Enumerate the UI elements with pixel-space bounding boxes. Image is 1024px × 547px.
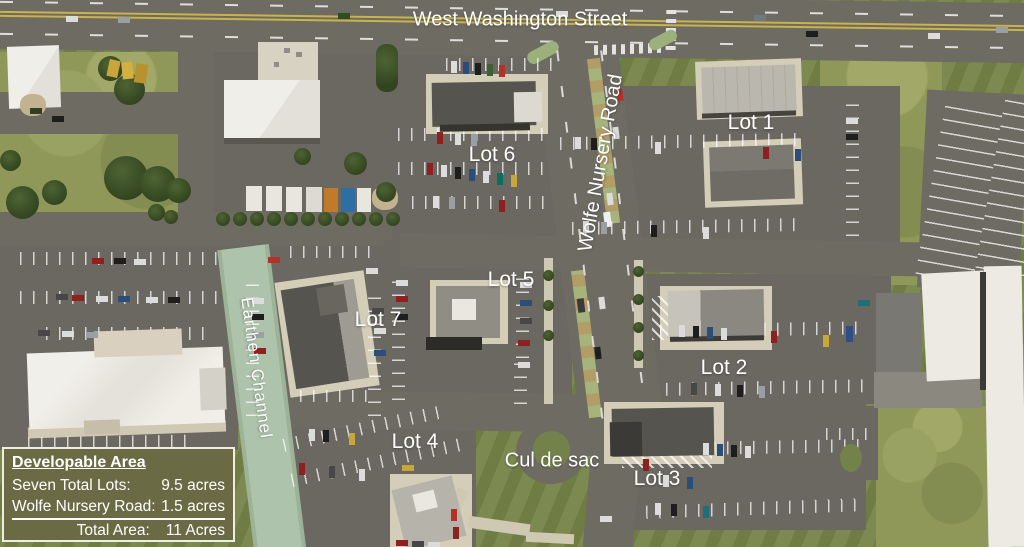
car — [518, 362, 530, 368]
car — [858, 300, 870, 306]
car — [463, 62, 469, 74]
car — [575, 137, 581, 149]
building-lot1-lower — [709, 145, 795, 202]
tree — [543, 270, 554, 281]
car — [520, 300, 532, 306]
car — [52, 116, 64, 122]
car — [497, 173, 503, 185]
building-store — [27, 347, 226, 430]
car — [62, 331, 74, 337]
stripes-lot5-col1 — [392, 276, 405, 400]
car — [96, 296, 108, 302]
car — [703, 227, 709, 239]
trailer-2 — [266, 186, 282, 211]
legend-row-total-area: Total Area: 11 Acres — [12, 520, 225, 541]
tree — [344, 152, 367, 175]
car — [134, 259, 146, 265]
car — [455, 133, 461, 145]
car — [449, 197, 455, 209]
bush — [250, 212, 264, 226]
car — [717, 444, 723, 456]
car — [693, 326, 699, 338]
car — [455, 167, 461, 179]
legend-value: 11 Acres — [166, 520, 225, 541]
car — [487, 64, 493, 76]
car — [703, 443, 709, 455]
car — [86, 332, 98, 338]
tree — [166, 178, 191, 203]
car — [475, 63, 481, 75]
bush — [284, 212, 298, 226]
car — [118, 17, 130, 23]
car — [707, 327, 713, 339]
car — [687, 477, 693, 489]
car — [56, 294, 68, 300]
car — [846, 118, 858, 124]
car — [329, 466, 335, 478]
car — [846, 134, 858, 140]
tree — [0, 150, 21, 171]
car — [598, 297, 605, 310]
car — [349, 433, 355, 445]
car — [643, 459, 649, 471]
car — [451, 509, 457, 521]
loop-island — [840, 444, 862, 472]
tree — [543, 300, 554, 311]
building-far-right-band — [984, 266, 1024, 547]
car — [412, 541, 424, 547]
trailer-3 — [286, 187, 302, 212]
building-store-tan — [94, 328, 183, 357]
stripes-lot5-col3 — [514, 362, 527, 404]
building-lot5-white — [452, 299, 476, 320]
roof-unit-1 — [284, 48, 290, 53]
bush — [369, 212, 383, 226]
car — [428, 542, 440, 547]
tree — [294, 148, 311, 165]
bush — [233, 212, 247, 226]
drive-right — [876, 293, 922, 381]
car — [72, 295, 84, 301]
car — [254, 348, 266, 354]
car — [737, 385, 743, 397]
car — [771, 331, 777, 343]
car — [374, 350, 386, 356]
car — [996, 27, 1008, 33]
car — [612, 127, 619, 140]
car — [663, 475, 669, 487]
trailer-5 — [357, 188, 371, 212]
car — [594, 347, 601, 360]
car — [268, 257, 280, 263]
car — [338, 13, 350, 19]
car — [402, 465, 414, 471]
car — [441, 165, 447, 177]
tree — [543, 330, 554, 341]
car — [679, 325, 685, 337]
tree — [633, 294, 644, 305]
car — [601, 222, 607, 234]
car — [651, 225, 657, 237]
car — [299, 463, 305, 475]
trailer-4 — [306, 187, 322, 212]
car — [252, 298, 264, 304]
car — [66, 16, 78, 22]
car — [437, 132, 443, 144]
culdesac-island — [533, 431, 570, 468]
bush — [386, 212, 400, 226]
legend-row-wolfe-nursery-road: Wolfe Nursery Road: 1.5 acres — [12, 496, 225, 519]
stripes-loop — [826, 428, 874, 440]
bush — [335, 212, 349, 226]
car — [323, 430, 329, 442]
bush — [318, 212, 332, 226]
stripes-lot7-row2 — [300, 390, 370, 402]
legend-label: Seven Total Lots: — [12, 475, 131, 496]
car — [309, 429, 315, 441]
car — [556, 11, 568, 17]
car — [359, 469, 365, 481]
car — [745, 446, 751, 458]
car — [396, 296, 408, 302]
trailer-orange — [324, 188, 338, 212]
car — [374, 328, 386, 334]
car — [168, 297, 180, 303]
building-lot5-trucks — [426, 337, 482, 350]
equipment — [121, 61, 134, 79]
bush — [352, 212, 366, 226]
hedge-entrance — [376, 44, 398, 92]
car — [731, 445, 737, 457]
car — [366, 268, 378, 274]
building-lot3-wing — [610, 422, 643, 457]
car — [655, 142, 661, 154]
car — [928, 33, 940, 39]
car — [471, 134, 477, 146]
car — [396, 540, 408, 546]
car — [433, 196, 439, 208]
car — [703, 506, 709, 518]
car — [616, 89, 623, 102]
car — [583, 221, 589, 233]
car — [518, 340, 530, 346]
legend-value: 1.5 acres — [161, 496, 225, 517]
car — [118, 296, 130, 302]
car — [600, 516, 612, 522]
car — [691, 383, 697, 395]
legend-row-total-lots: Seven Total Lots: 9.5 acres — [12, 475, 225, 496]
car — [754, 15, 766, 21]
car — [396, 314, 408, 320]
roof-unit-2 — [296, 52, 302, 57]
car — [606, 193, 613, 206]
car — [469, 169, 475, 181]
car — [38, 330, 50, 336]
building-lot6-white — [514, 92, 543, 122]
car — [520, 318, 532, 324]
car — [451, 61, 457, 73]
car — [671, 504, 677, 516]
site-plan-image: West Washington Street Wolfe Nursery Roa… — [0, 0, 1024, 547]
car — [763, 147, 769, 159]
tree — [148, 204, 165, 221]
developable-area-legend: Developable Area Seven Total Lots: 9.5 a… — [2, 447, 235, 542]
bush — [267, 212, 281, 226]
tree — [42, 180, 67, 205]
car — [483, 171, 489, 183]
car — [453, 527, 459, 539]
car — [721, 328, 727, 340]
car — [427, 163, 433, 175]
truck — [846, 326, 853, 342]
legend-value: 9.5 acres — [161, 475, 225, 496]
building-center — [224, 80, 320, 140]
building-far-right-wing — [921, 270, 989, 381]
bush — [216, 212, 230, 226]
car — [499, 200, 505, 212]
building-lot7-wing — [316, 284, 348, 316]
car — [715, 384, 721, 396]
tree — [6, 186, 39, 219]
tree — [633, 350, 644, 361]
building-store-canopy — [84, 419, 120, 434]
car — [252, 332, 264, 338]
bush — [301, 212, 315, 226]
tree — [633, 266, 644, 277]
car — [30, 108, 42, 114]
building-store-wing — [199, 368, 226, 411]
car — [92, 258, 104, 264]
tree — [376, 182, 396, 202]
car — [759, 386, 765, 398]
car — [806, 31, 818, 37]
car — [795, 149, 801, 161]
trailer-1 — [246, 186, 262, 211]
legend-label: Wolfe Nursery Road: — [12, 496, 156, 517]
car — [252, 314, 264, 320]
building-lot1-upper — [701, 64, 797, 115]
car — [499, 65, 505, 77]
legend-label: Total Area: — [77, 520, 150, 541]
car — [655, 503, 661, 515]
car — [114, 258, 126, 264]
building-center-shadow — [224, 138, 320, 144]
car — [823, 335, 829, 347]
car — [396, 280, 408, 286]
car — [146, 297, 158, 303]
stripes-lot7-row1 — [290, 246, 370, 258]
car — [372, 308, 384, 314]
field-bottom-right — [876, 406, 988, 547]
tree — [633, 322, 644, 333]
tree — [164, 210, 178, 224]
car — [520, 282, 532, 288]
legend-title: Developable Area — [12, 452, 225, 474]
building-far-right-seam — [980, 272, 986, 390]
trailer-blue — [341, 188, 355, 212]
car — [511, 175, 517, 187]
roof-unit-3 — [274, 62, 279, 67]
car — [591, 138, 597, 150]
